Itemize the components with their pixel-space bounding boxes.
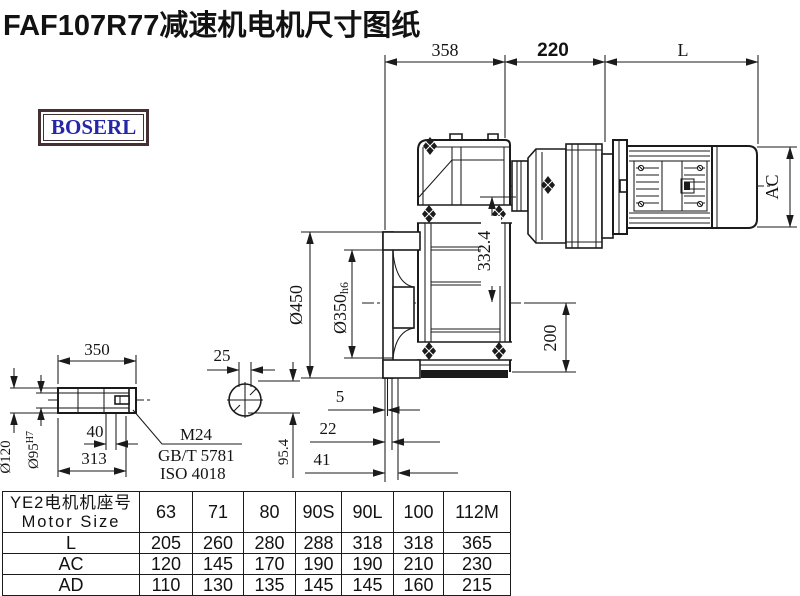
- motor-size-table: YE2电机机座号 Motor Size 63 71 80 90S 90L 100…: [2, 491, 511, 596]
- cell-L-63: 205: [140, 533, 193, 554]
- motor-view: [613, 140, 757, 234]
- cell-AD-90L: 145: [342, 575, 394, 596]
- cell-AD-112M: 215: [444, 575, 511, 596]
- thread-standard-2: ISO 4018: [160, 464, 226, 483]
- dim-key-depth-label: 95.4: [276, 438, 292, 465]
- cell-AC-112M: 230: [444, 554, 511, 575]
- col-100: 100: [394, 492, 444, 533]
- cell-AD-100: 160: [394, 575, 444, 596]
- col-80: 80: [244, 492, 296, 533]
- table-header-motor-size: YE2电机机座号 Motor Size: [3, 492, 140, 533]
- dim-spigot-value: Ø350: [330, 294, 350, 334]
- dim-spigot-tolerance: h6: [337, 282, 351, 294]
- cell-L-112M: 365: [444, 533, 511, 554]
- input-adapter-view: [512, 144, 613, 248]
- dim-AC-label: AC: [762, 174, 782, 199]
- table-header-row: YE2电机机座号 Motor Size 63 71 80 90S 90L 100…: [3, 492, 511, 533]
- dim-bore-label: Ø95H7: [25, 431, 42, 469]
- dimensions: 358 220 L AC Ø450 Ø350h6 332.4 200: [0, 40, 797, 483]
- dim-L-label: L: [678, 40, 689, 60]
- dim-220-label: 220: [537, 40, 569, 61]
- dim-spigot-label: Ø350h6: [330, 282, 351, 334]
- cell-AD-90S: 145: [296, 575, 342, 596]
- dim-off3-label: 41: [314, 450, 331, 469]
- header-cn: YE2电机机座号: [3, 494, 139, 513]
- row-label-AD: AD: [3, 575, 140, 596]
- drawing-sheet: FAF107R77减速机电机尺寸图纸 BOSERL: [0, 0, 800, 596]
- cell-L-71: 260: [193, 533, 244, 554]
- table-row-AD: AD 110 130 135 145 145 160 215: [3, 575, 511, 596]
- dim-shaft-length-label: 350: [84, 340, 110, 359]
- dim-off1-label: 5: [336, 387, 345, 406]
- cell-L-90S: 288: [296, 533, 342, 554]
- cell-L-100: 318: [394, 533, 444, 554]
- dim-bore-tolerance: H7: [25, 431, 36, 443]
- row-label-L: L: [3, 533, 140, 554]
- cell-AC-63: 120: [140, 554, 193, 575]
- dim-358-label: 358: [432, 40, 459, 60]
- output-flange-view: [383, 232, 420, 378]
- col-90L: 90L: [342, 492, 394, 533]
- col-112M: 112M: [444, 492, 511, 533]
- dim-bore-len-label: 40: [87, 422, 104, 441]
- dim-key-width-label: 25: [214, 346, 231, 365]
- table-row-AC: AC 120 145 170 190 190 210 230: [3, 554, 511, 575]
- cell-AC-90L: 190: [342, 554, 394, 575]
- header-en: Motor Size: [3, 513, 139, 531]
- dim-shaft-od-label: Ø120: [0, 440, 14, 473]
- thread-standard-1: GB/T 5781: [158, 446, 235, 465]
- cell-AD-71: 130: [193, 575, 244, 596]
- cell-AC-80: 170: [244, 554, 296, 575]
- dim-hub-len-label: 313: [81, 449, 107, 468]
- cell-AD-80: 135: [244, 575, 296, 596]
- cell-L-90L: 318: [342, 533, 394, 554]
- dim-center-height-label: 332.4: [474, 231, 494, 272]
- dim-off2-label: 22: [320, 419, 337, 438]
- col-71: 71: [193, 492, 244, 533]
- dim-base-height-label: 200: [540, 325, 560, 352]
- col-63: 63: [140, 492, 193, 533]
- col-90S: 90S: [296, 492, 342, 533]
- table-row-L: L 205 260 280 288 318 318 365: [3, 533, 511, 554]
- cell-AC-100: 210: [394, 554, 444, 575]
- cell-AC-90S: 190: [296, 554, 342, 575]
- cell-AC-71: 145: [193, 554, 244, 575]
- dim-bore-value: Ø95: [26, 443, 42, 469]
- cell-AD-63: 110: [140, 575, 193, 596]
- cell-L-80: 280: [244, 533, 296, 554]
- thread-callout: M24: [180, 425, 213, 444]
- dim-flange-od-label: Ø450: [286, 285, 306, 325]
- row-label-AC: AC: [3, 554, 140, 575]
